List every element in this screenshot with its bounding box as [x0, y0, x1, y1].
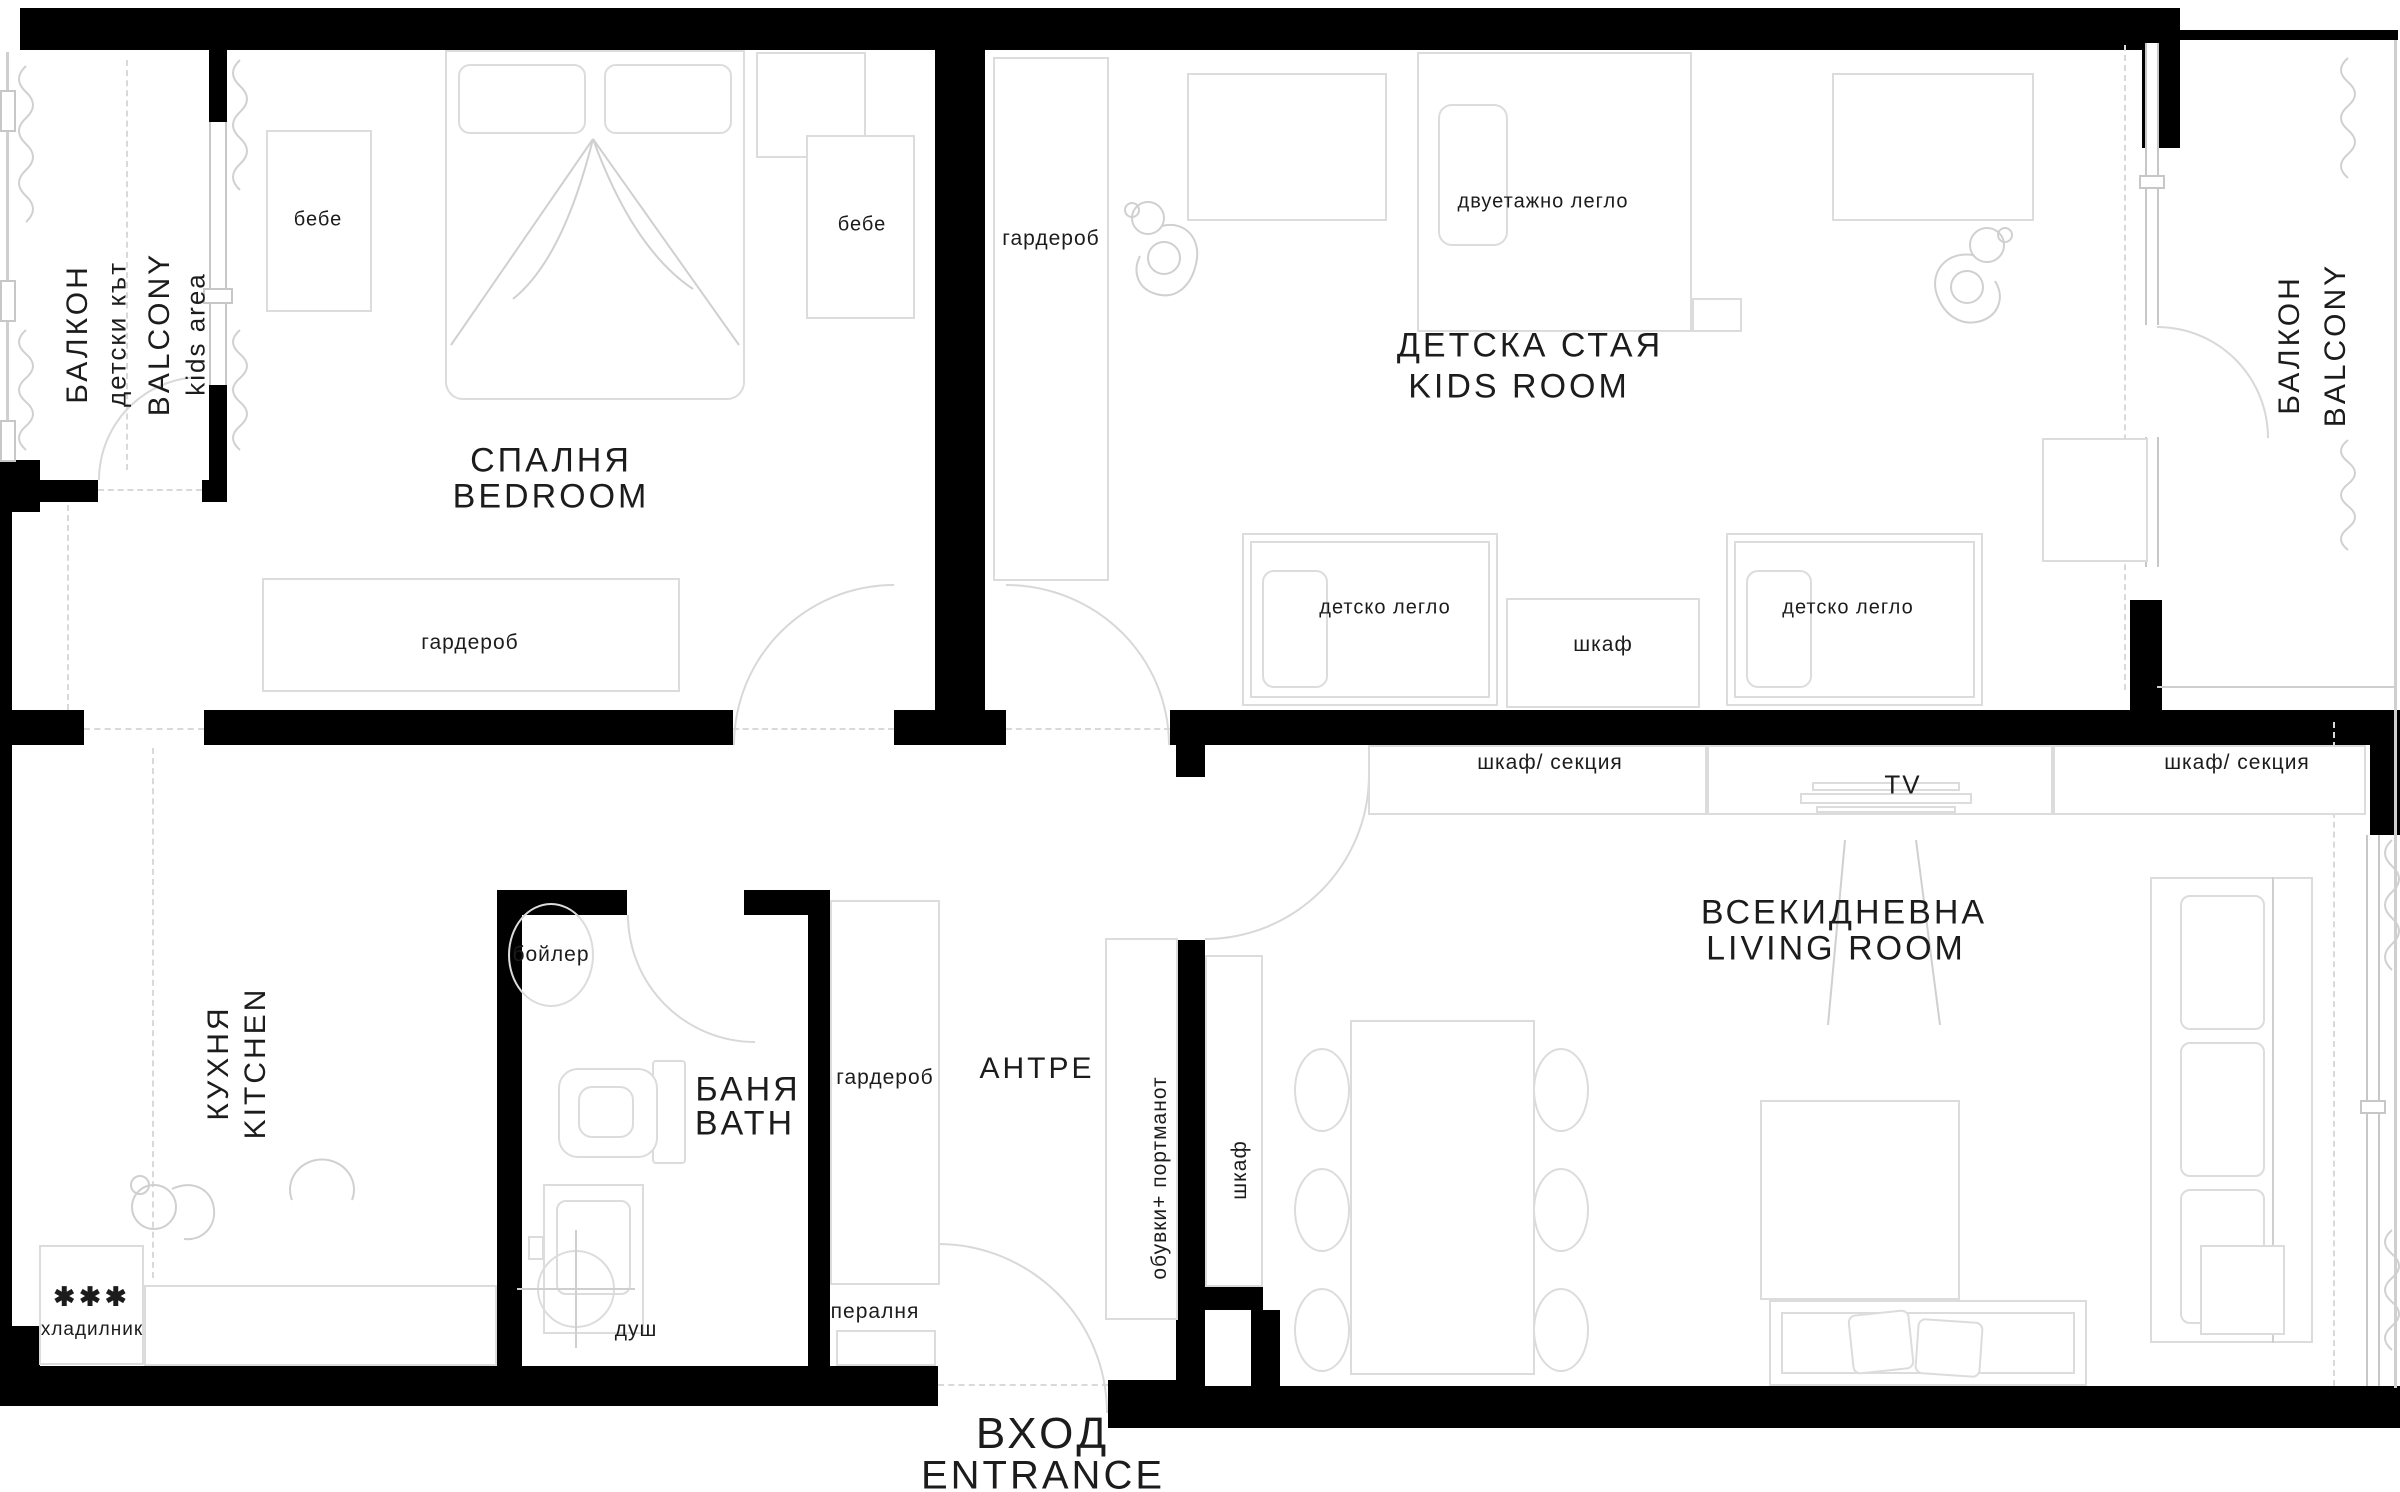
room-label-balcony-left-sub-bg: детски кът	[102, 261, 133, 407]
bunk-bed-step	[1692, 298, 1742, 332]
door-threshold	[733, 728, 894, 730]
wall-niche-stub-a	[1205, 1287, 1263, 1310]
window-bedroom-balcony	[209, 122, 227, 385]
door-threshold	[1006, 728, 1170, 730]
wall-mid-right	[1170, 710, 2400, 745]
furniture-label-wardrobe-bedroom: гардероб	[421, 631, 518, 655]
balcony-right-bottom-edge	[2157, 686, 2397, 688]
furniture-label-washer: пералня	[831, 1300, 920, 1324]
furniture-label-cabinet-hall: шкаф	[1228, 1140, 1252, 1199]
wall-mid-left-a	[0, 710, 84, 745]
cabinet-hall	[1205, 955, 1263, 1287]
door-arc-living-room	[1205, 775, 1370, 940]
kitchen-chair-icon	[124, 1155, 224, 1250]
right-outer-edge	[2394, 40, 2397, 1388]
furniture-label-kids-bed-left: детско легло	[1319, 597, 1450, 620]
fridge-stars-icon: ✱✱✱	[53, 1282, 130, 1313]
room-label-balcony-left-en: BALCONY	[143, 252, 177, 416]
furniture-label-cabinet-section-left: шкаф/ секция	[1477, 751, 1623, 775]
curtain-squiggle-icon	[2380, 1230, 2400, 1370]
wall-left-outer	[0, 502, 12, 1406]
wall-hall-living-upper	[1176, 745, 1205, 777]
furniture-label-shower: душ	[615, 1318, 658, 1342]
room-label-balcony-right-bg: БАЛКОН	[2273, 275, 2307, 415]
shower-cross	[575, 1230, 577, 1348]
kids-desk-right	[1832, 73, 2034, 221]
furniture-label-boiler: бойлер	[512, 943, 589, 967]
wall-hall-living-lower	[1176, 940, 1205, 1388]
kids-desk-left	[1187, 73, 1387, 221]
room-label-kitchen-bg: КУХНЯ	[202, 1005, 236, 1120]
wall-bottom-hall-stub	[1108, 1380, 1183, 1428]
shower-mixer	[528, 1236, 544, 1260]
door-threshold	[84, 728, 204, 730]
wall-bottom-living	[1183, 1386, 2400, 1428]
pillow	[458, 64, 586, 134]
curtain-squiggle-icon	[2380, 840, 2400, 990]
floor-cushion	[1847, 1309, 1915, 1375]
wall-balcony-bottom-left	[40, 480, 98, 502]
wall-balcony-bedroom-lower	[209, 385, 227, 482]
floor-cushion	[1914, 1318, 1984, 1378]
pillow	[1438, 104, 1508, 246]
dining-chair	[1294, 1168, 1350, 1252]
sofa-cushion	[2180, 895, 2265, 1030]
door-threshold	[98, 489, 202, 491]
side-table	[2200, 1245, 2285, 1335]
wall-bedroom-kids	[935, 50, 985, 712]
coffee-table	[1760, 1100, 1960, 1300]
window-pane	[0, 280, 16, 322]
curtain-squiggle-icon	[228, 60, 252, 210]
furniture-label-fridge: хладилник	[41, 1319, 143, 1341]
room-label-kids-en: KIDS ROOM	[1408, 368, 1630, 407]
furniture-label-wardrobe-kids: гардероб	[1002, 227, 1099, 251]
door-arc-kids-room	[1006, 584, 1170, 745]
curtain-squiggle-icon	[2336, 58, 2360, 198]
room-label-kids-bg: ДЕТСКА СТАЯ	[1397, 327, 1663, 366]
furniture-label-kids-bed-right: детско легло	[1782, 597, 1913, 620]
room-label-bedroom-bg: СПАЛНЯ	[470, 442, 632, 481]
room-label-balcony-left-sub-en: kids area	[181, 272, 212, 396]
dining-chair	[1294, 1048, 1350, 1132]
room-label-bedroom-en: BEDROOM	[453, 478, 650, 517]
furniture-label-cabinet-kids: шкаф	[1573, 633, 1632, 657]
room-label-bath-en: BATH	[695, 1105, 795, 1144]
dining-chair	[1533, 1288, 1589, 1372]
toilet-seat	[578, 1086, 634, 1138]
wardrobe-kids	[993, 57, 1109, 581]
wall-bath-right	[808, 890, 830, 1366]
dining-chair	[1294, 1288, 1350, 1372]
dashed-line	[2333, 722, 2335, 1386]
wall-mid-center	[894, 710, 1006, 745]
furniture-label-wardrobe-hall: гардероб	[836, 1066, 933, 1090]
room-label-living-en: LIVING ROOM	[1706, 930, 1966, 969]
curtain-squiggle-icon	[228, 330, 252, 470]
kitchen-counter	[144, 1285, 497, 1366]
washing-machine	[836, 1330, 936, 1366]
dashed-line	[67, 505, 69, 710]
teddy-bear-icon	[1120, 196, 1210, 316]
wall-bottom-kitchen	[0, 1366, 938, 1406]
wall-balcony-top-thin	[2180, 30, 2398, 40]
window-tick	[2360, 1100, 2386, 1114]
wall-kids-right-step	[2130, 600, 2162, 722]
furniture-label-crib-right: бебе	[838, 214, 886, 237]
floor-plan: БАЛКОН детски кът BALCONY kids area СПАЛ…	[0, 0, 2400, 1492]
dining-chair	[1533, 1168, 1589, 1252]
curtain-squiggle-icon	[14, 66, 38, 226]
entrance-label-en: ENTRANCE	[921, 1454, 1165, 1492]
room-label-balcony-left-bg: БАЛКОН	[61, 264, 95, 404]
window-tick	[2139, 175, 2165, 189]
door-arc-entrance	[938, 1243, 1108, 1413]
furniture-label-bunk-bed: двуетажно легло	[1458, 191, 1629, 214]
door-arc-bedroom	[733, 584, 894, 745]
room-label-kitchen-en: KITCHEN	[239, 987, 273, 1140]
curtain-squiggle-icon	[2336, 440, 2360, 570]
teddy-bear-icon	[1921, 217, 2021, 337]
wall-mid-left-b	[204, 710, 733, 745]
room-label-hall: АНТРЕ	[979, 1052, 1094, 1086]
furniture-label-cabinet-section-right: шкаф/ секция	[2164, 751, 2310, 775]
wall-niche-stub-b	[1251, 1310, 1280, 1386]
entrance-label-bg: ВХОД	[976, 1409, 1110, 1459]
pillow	[1746, 570, 1812, 688]
balcony-cabinet	[2042, 438, 2148, 562]
curtain-squiggle-icon	[14, 330, 38, 470]
wall-balcony-bottom-right	[202, 480, 227, 502]
furniture-label-tv: TV	[1884, 770, 1921, 801]
kitchen-stool-icon	[282, 1140, 362, 1210]
wall-top	[20, 8, 2180, 50]
pillow	[604, 64, 732, 134]
room-label-living-bg: ВСЕКИДНЕВНА	[1701, 894, 1987, 933]
dashed-line	[2124, 45, 2126, 690]
room-label-balcony-right-en: BALCONY	[2319, 263, 2353, 427]
door-arc-bath	[627, 915, 755, 1043]
dining-table	[1350, 1020, 1535, 1375]
furniture-label-crib-left: бебе	[294, 209, 342, 232]
wardrobe-hall	[830, 900, 940, 1285]
door-threshold	[938, 1384, 1108, 1386]
wall-balcony-bedroom-upper	[209, 50, 227, 122]
bed-drape	[445, 135, 745, 350]
sofa-cushion	[2180, 1042, 2265, 1177]
dining-chair	[1533, 1048, 1589, 1132]
tv-unit	[1816, 806, 1956, 813]
furniture-label-shoes-rack: обувки+ портманот	[1148, 1076, 1172, 1279]
tv-cabinet	[1707, 745, 2053, 815]
pillow	[1262, 570, 1328, 688]
door-arc-balcony-right	[2157, 326, 2269, 438]
